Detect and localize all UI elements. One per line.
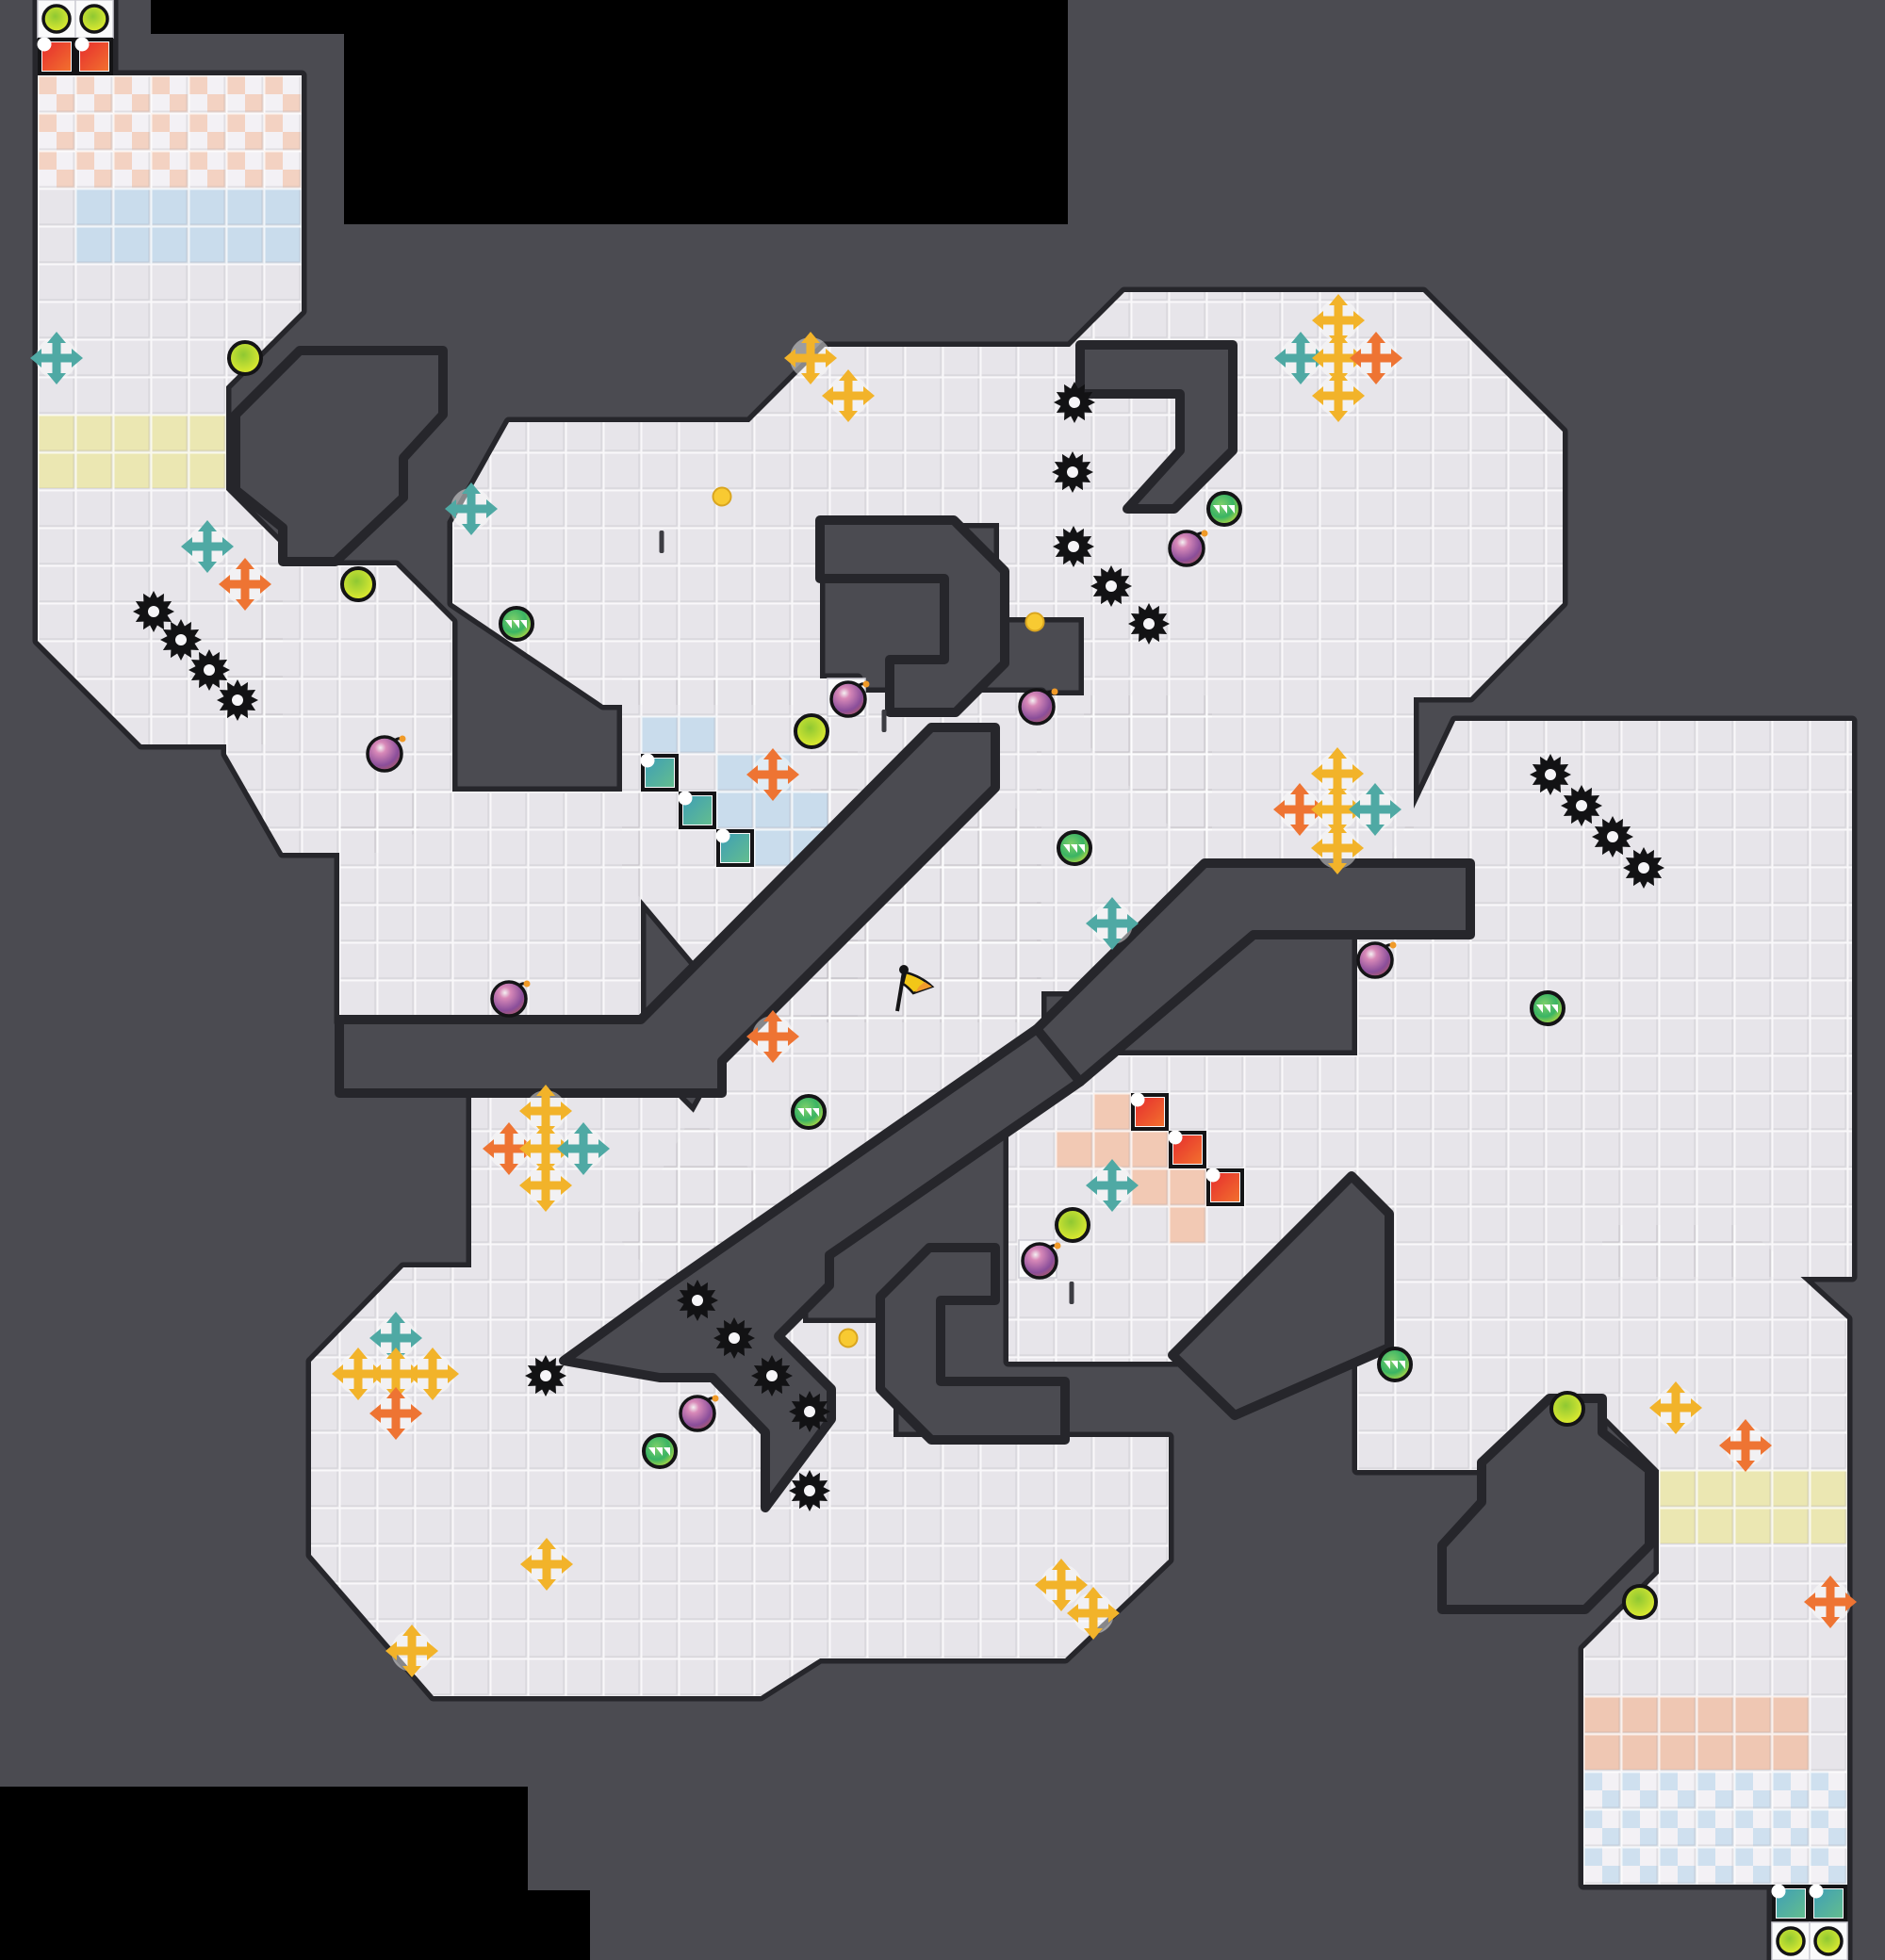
teal-flag-tile (641, 754, 680, 792)
chevron-orb-pickup (1532, 992, 1564, 1024)
red-flag-tile (1131, 1093, 1170, 1132)
spawn-orb-tile (1810, 1922, 1847, 1960)
chevron-orb-pickup (1208, 493, 1240, 525)
red-flag-tile (1206, 1168, 1245, 1207)
green-orb-pickup (229, 342, 261, 374)
red-flag-tile (1169, 1131, 1207, 1169)
green-orb-pickup (1057, 1209, 1089, 1241)
chevron-orb-pickup (793, 1096, 825, 1128)
green-orb-pickup (1624, 1586, 1656, 1618)
teal-flag-tile (1772, 1885, 1811, 1923)
red-flag-tile (75, 38, 114, 76)
coin-pickup (840, 1330, 858, 1347)
wall-dash-marker (1070, 1282, 1074, 1304)
chevron-orb-pickup (500, 608, 533, 640)
red-flag-tile (38, 38, 76, 76)
arena-svg[interactable] (0, 0, 1885, 1960)
chevron-orb-pickup (1058, 832, 1090, 864)
spawn-orb-tile (75, 0, 113, 38)
chevron-orb-pickup (644, 1435, 676, 1467)
teal-flag-tile (716, 829, 755, 868)
green-orb-pickup (1551, 1393, 1583, 1425)
chevron-orb-pickup (1379, 1348, 1411, 1380)
green-orb-pickup (342, 568, 374, 600)
wall-dash-marker (660, 531, 664, 553)
teal-flag-tile (1810, 1885, 1848, 1923)
game-map-canvas[interactable] (0, 0, 1885, 1960)
wall-dash-marker (882, 710, 887, 732)
coin-pickup (713, 488, 731, 506)
coin-pickup (1026, 613, 1044, 631)
spawn-orb-tile (1772, 1922, 1810, 1960)
spawn-orb-tile (38, 0, 75, 38)
teal-flag-tile (679, 792, 717, 830)
green-orb-pickup (795, 715, 828, 747)
